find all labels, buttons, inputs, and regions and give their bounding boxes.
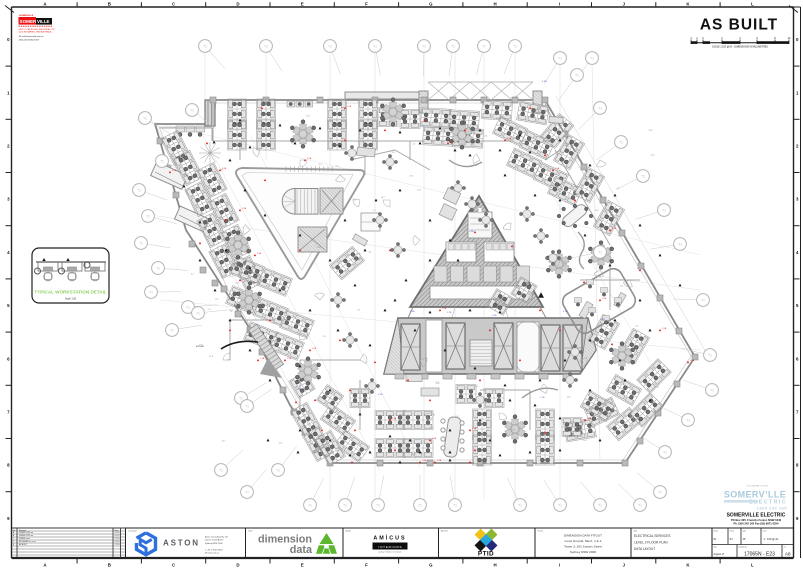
svg-text:appr: appr [743,530,747,533]
svg-text:T1: T1 [308,504,312,508]
svg-text:T1: T1 [190,109,194,113]
svg-text:Tel: info@somerville.com.au: Tel: info@somerville.com.au [19,36,44,38]
svg-text:Builder: Builder [346,531,352,533]
svg-text:T1: T1 [575,74,579,78]
svg-text:D: D [236,2,239,7]
svg-text:T1: T1 [708,354,712,358]
svg-text:T1: T1 [451,45,455,49]
svg-text:Aston Consulting Pty Ltd: Aston Consulting Pty Ltd [205,536,229,539]
svg-text:G: G [429,563,433,568]
svg-text:T +61 2 9000 0000: T +61 2 9000 0000 [205,549,223,551]
svg-text:4.11.17: 4.11.17 [115,535,121,537]
svg-text:G: G [429,2,433,7]
svg-text:drawn: drawn [714,530,719,533]
svg-text:1.2A: 1.2A [437,459,442,462]
svg-text:T1: T1 [219,469,223,473]
svg-text:T1: T1 [376,504,380,508]
svg-text:D: D [236,563,239,568]
svg-text:ELECTRICAL SERVICES: ELECTRICAL SERVICES [634,534,671,538]
svg-text:1.2B: 1.2B [447,312,452,314]
svg-text:T1: T1 [598,504,602,508]
svg-text:Sydney NSW 2000: Sydney NSW 2000 [205,543,223,545]
svg-text:T1: T1 [710,389,714,393]
svg-text:ASTON: ASTON [163,539,200,548]
svg-text:A8: A8 [785,552,791,557]
svg-text:5.2B: 5.2B [469,231,474,233]
svg-text:5.11.17: 5.11.17 [115,538,121,540]
svg-text:T1: T1 [245,491,249,495]
svg-text:2.2B: 2.2B [492,315,497,317]
svg-text:check: check [730,531,735,533]
svg-text:SCALE 1:100 @ A1 - DIMENSION: SCALE 1:100 @ A1 - DIMENSIONS IN MILLIME… [712,45,768,48]
svg-text:T1: T1 [641,175,645,179]
svg-text:date: date [714,546,717,549]
svg-text:2.2B: 2.2B [378,394,383,396]
svg-text:1.2A: 1.2A [612,227,617,230]
svg-text:1.2A: 1.2A [260,357,265,360]
svg-text:W aston.net.au: W aston.net.au [205,552,220,555]
svg-text:1.2A: 1.2A [450,140,455,143]
svg-text:1.2A: 1.2A [307,157,312,160]
svg-text:1.2A: 1.2A [587,417,592,420]
svg-text:1.2A: 1.2A [392,417,397,420]
svg-text:T1: T1 [701,299,705,303]
svg-text:17065N - E23: 17065N - E23 [744,552,775,558]
svg-text:H: H [494,2,497,7]
svg-text:1.2A: 1.2A [602,297,607,300]
svg-text:ISSUED FOR xxx: ISSUED FOR xxx [19,532,33,534]
svg-text:T1: T1 [276,469,280,473]
svg-text:I: I [559,563,560,568]
svg-text:B: B [108,2,111,7]
svg-text:Consultant: Consultant [128,530,137,533]
svg-text:1.2A: 1.2A [690,359,695,362]
svg-text:T1: T1 [662,209,666,213]
svg-text:rev: rev [784,546,787,549]
svg-text:T1: T1 [143,117,147,121]
svg-text:T1: T1 [264,45,268,49]
svg-text:T1: T1 [422,45,426,49]
svg-text:T1: T1 [678,243,682,247]
svg-text:3.0B: 3.0B [410,311,415,313]
svg-text:T1: T1 [160,160,164,164]
svg-text:drawing no.: drawing no. [739,546,748,549]
svg-text:T1: T1 [196,312,200,316]
svg-text:1.2B: 1.2B [298,389,303,391]
svg-text:PTID: PTID [478,551,494,558]
svg-text:1.2A: 1.2A [472,427,477,430]
svg-text:T1: T1 [139,242,143,246]
svg-text:T1: T1 [482,45,486,49]
svg-text:T1: T1 [619,141,623,145]
svg-text:T1: T1 [598,107,602,111]
svg-text:Ph 1300 242 165 Fax (02) 997: Ph 1300 242 165 Fax (02) 9971 0254 [734,522,779,526]
svg-text:scale: scale [763,531,767,533]
svg-text:1.2A: 1.2A [347,105,352,108]
svg-text:SOMERV’LLE: SOMERV’LLE [724,490,786,500]
svg-text:ISSUED xxxx: ISSUED xxxx [19,538,30,540]
svg-text:7.11.17: 7.11.17 [115,544,121,546]
svg-text:TYPICAL WORKSTATION DETAIL: TYPICAL WORKSTATION DETAIL [34,290,107,295]
svg-text:10-16 INT BARREL, NSW AUSTRALI: 10-16 INT BARREL, NSW AUSTRALIA [19,31,53,34]
svg-text:SOMERVILLE: SOMERVILLE [19,15,34,17]
svg-text:1.2A: 1.2A [287,357,292,360]
svg-text:AMİCUS: AMİCUS [373,535,406,542]
svg-text:JP: JP [743,537,746,541]
svg-text:1.2A: 1.2A [432,437,437,440]
svg-text:T1: T1 [686,419,690,423]
svg-text:B: B [108,563,111,568]
svg-text:Sydney NSW 2000: Sydney NSW 2000 [570,550,596,554]
svg-text:data: data [290,544,313,556]
svg-text:T1: T1 [373,45,377,49]
svg-text:T1: T1 [658,491,662,495]
svg-text:ISSUED FOR xxx: ISSUED FOR xxx [19,535,33,537]
svg-text:T1: T1 [598,251,602,255]
svg-text:1300 242 165 ACN 077: 1300 242 165 ACN 077 [19,38,41,41]
svg-text:PO Box 325, Frenchs Forest, NS: PO Box 325, Frenchs Forest, NSW 1640 [731,518,782,522]
svg-text:Client: Client [248,530,253,533]
svg-text:H: H [494,563,497,568]
svg-text:L: L [751,2,754,7]
svg-text:DATA LAYOUT: DATA LAYOUT [634,547,655,551]
svg-text:1.2A: 1.2A [555,167,560,170]
svg-text:T1: T1 [328,45,332,49]
svg-text:Project: Project [538,530,544,533]
svg-text:LEVEL 2 FLOOR PLAN: LEVEL 2 FLOOR PLAN [634,541,668,545]
svg-text:T1: T1 [558,504,562,508]
svg-text:AS BUILT: AS BUILT [700,17,778,34]
svg-text:T1: T1 [186,306,190,310]
svg-text:T1: T1 [156,267,160,271]
svg-text:Unit 15 Trade A1/75: Unit 15 Trade A1/75 [205,539,224,542]
svg-text:E: E [301,563,304,568]
svg-text:sydney melbourne brisbane: sydney melbourne brisbane [378,551,401,554]
svg-text:1.2A: 1.2A [442,307,447,310]
svg-text:1.2A: 1.2A [257,252,262,255]
svg-text:T1: T1 [343,504,347,508]
svg-text:1.2A: 1.2A [662,327,667,330]
svg-text:AS BUILT: AS BUILT [19,543,28,546]
svg-text:Tower 3, 201 Sussex Street: Tower 3, 201 Sussex Street [564,545,602,549]
svg-text:I N T E R I O R S: I N T E R I O R S [379,545,402,549]
svg-text:SOMER: SOMER [20,19,38,24]
svg-text:VILLE: VILLE [37,19,50,24]
svg-text:3.3B: 3.3B [542,81,547,83]
svg-text:1.2A: 1.2A [242,207,247,210]
svg-text:1300 242 165: 1300 242 165 [757,506,788,511]
svg-text:T1: T1 [513,45,517,49]
svg-text:August 17: August 17 [714,553,725,556]
svg-text:T1: T1 [558,57,562,61]
svg-text:Architect: Architect [441,530,448,533]
svg-text:1.1B: 1.1B [540,397,545,399]
svg-text:T1: T1 [518,504,522,508]
svg-text:YOU CAN RELY ON US: YOU CAN RELY ON US [746,485,768,488]
svg-text:T1: T1 [137,189,141,193]
svg-text:T1: T1 [245,405,249,409]
svg-text:T1: T1 [170,329,174,333]
svg-text:T1: T1 [638,504,642,508]
svg-text:SOMERVILLE ELECTRIC: SOMERVILLE ELECTRIC [727,513,786,519]
svg-text:1.2A: 1.2A [312,347,317,350]
svg-text:1 : 100 @ A1: 1 : 100 @ A1 [764,537,780,541]
svg-text:6.11.17: 6.11.17 [115,541,121,543]
svg-text:T1: T1 [590,57,594,61]
svg-text:T1: T1 [146,215,150,219]
svg-text:2.1B: 2.1B [600,319,605,321]
svg-text:1.2A: 1.2A [507,137,512,140]
svg-text:3.11.17: 3.11.17 [115,532,121,534]
svg-text:1.2A: 1.2A [422,459,427,462]
svg-text:F: F [365,563,368,568]
svg-text:Level Ground, Mezz, 1 & 2: Level Ground, Mezz, 1 & 2 [565,539,602,543]
svg-text:RE-ISSUED xx xx xx: RE-ISSUED xx xx xx [19,541,36,543]
svg-text:T1: T1 [239,397,243,401]
svg-text:L: L [751,563,754,568]
svg-text:T1: T1 [203,45,207,49]
svg-text:E: E [301,2,304,7]
svg-text:1.2A: 1.2A [172,169,177,172]
svg-text:DIMENSION DATA FITOUT: DIMENSION DATA FITOUT [564,534,602,538]
svg-text:T1: T1 [149,291,153,295]
svg-text:T1: T1 [663,451,667,455]
svg-text:T1: T1 [453,504,457,508]
svg-text:F: F [365,2,368,7]
svg-text:Scale 1:50: Scale 1:50 [65,298,77,301]
svg-text:I: I [559,2,560,7]
svg-text:T1: T1 [418,504,422,508]
svg-text:4.1B: 4.1B [563,311,568,313]
svg-text:Title: Title [634,530,637,533]
